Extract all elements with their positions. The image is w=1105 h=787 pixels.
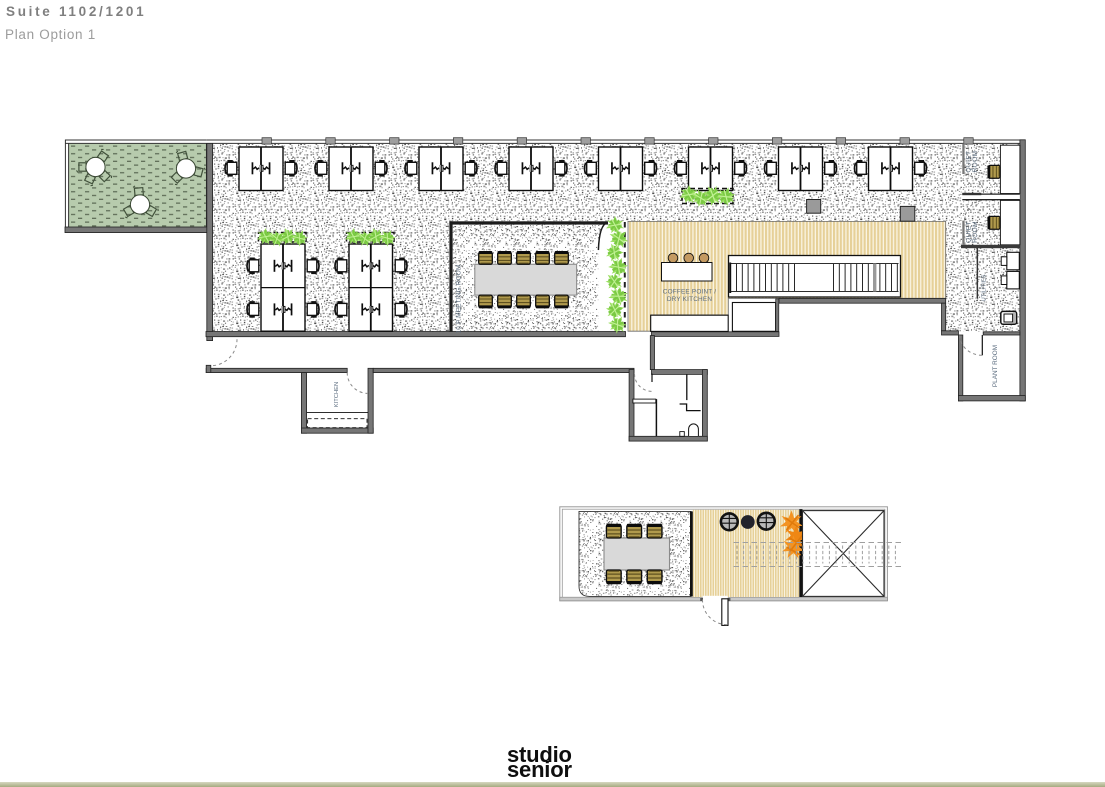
svg-text:UTILITIES: UTILITIES	[982, 274, 988, 301]
svg-text:PLANT ROOM: PLANT ROOM	[992, 345, 999, 387]
svg-text:ROOM: ROOM	[972, 151, 979, 173]
svg-text:DRY KITCHEN: DRY KITCHEN	[667, 296, 712, 303]
svg-text:COFFEE POINT /: COFFEE POINT /	[663, 289, 716, 296]
svg-text:10 P MEETING ROOM: 10 P MEETING ROOM	[456, 265, 463, 334]
svg-text:KITCHEN: KITCHEN	[334, 382, 340, 407]
svg-text:ROOM: ROOM	[972, 221, 979, 243]
